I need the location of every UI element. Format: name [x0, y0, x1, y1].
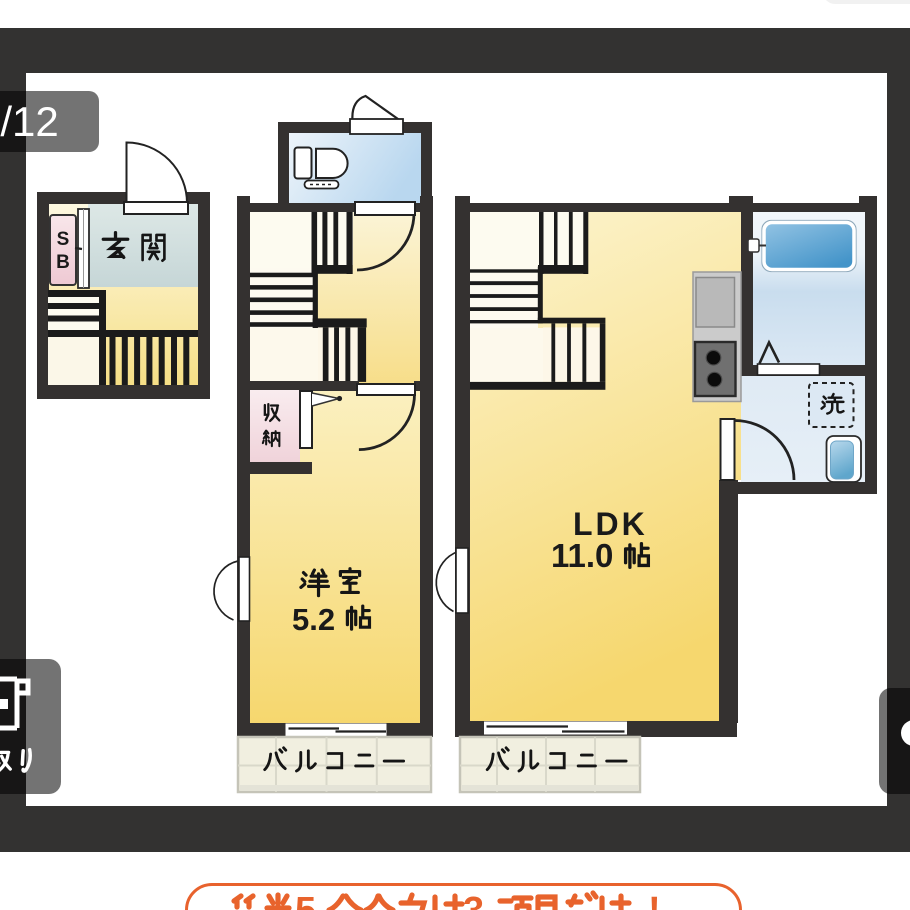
svg-text:!: ! [648, 890, 661, 910]
svg-text:5: 5 [295, 890, 316, 910]
svg-text:3: 3 [463, 890, 484, 910]
